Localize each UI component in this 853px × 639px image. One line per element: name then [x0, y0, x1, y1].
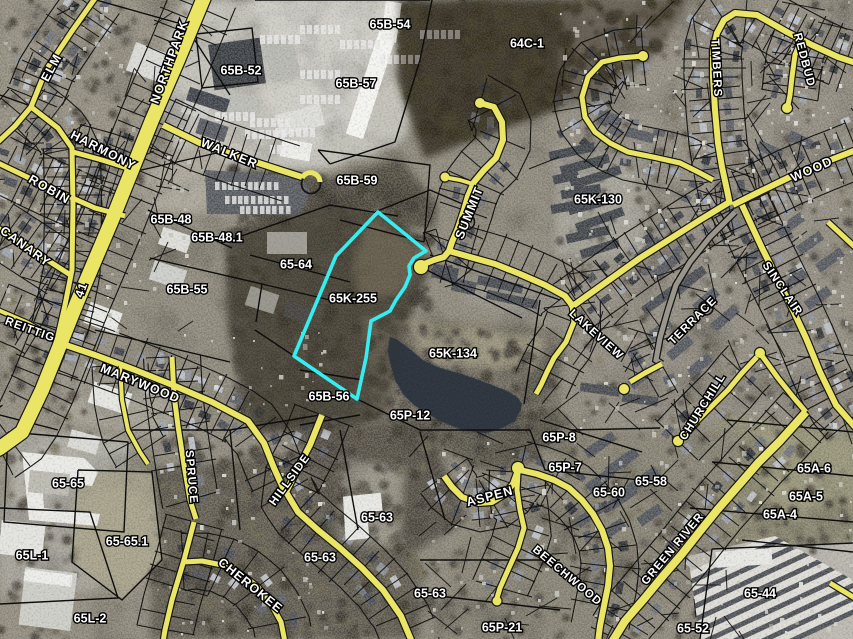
svg-text:65-63: 65-63 [304, 550, 336, 564]
svg-text:65-60: 65-60 [593, 485, 625, 499]
svg-text:65B-48.1: 65B-48.1 [191, 230, 242, 244]
svg-text:65-63: 65-63 [414, 586, 446, 600]
svg-text:65-44: 65-44 [744, 586, 776, 600]
svg-text:65P-21: 65P-21 [482, 620, 522, 634]
svg-text:65A-4: 65A-4 [763, 507, 797, 521]
svg-text:65P-8: 65P-8 [542, 430, 575, 444]
svg-text:65B-52: 65B-52 [221, 63, 262, 77]
svg-text:65B-48: 65B-48 [151, 212, 192, 226]
svg-text:64C-1: 64C-1 [510, 36, 544, 50]
svg-text:65-52: 65-52 [677, 621, 709, 635]
svg-text:65K-130: 65K-130 [574, 192, 622, 206]
svg-text:65B-59: 65B-59 [337, 173, 378, 187]
svg-text:65B-57: 65B-57 [336, 76, 377, 90]
svg-text:65K-134: 65K-134 [429, 346, 477, 360]
svg-text:65-64: 65-64 [280, 257, 312, 271]
svg-text:65A-6: 65A-6 [797, 461, 831, 475]
svg-text:65-65.1: 65-65.1 [106, 534, 148, 548]
svg-text:65P-7: 65P-7 [548, 460, 581, 474]
svg-text:65P-12: 65P-12 [390, 408, 430, 422]
svg-text:65K-255: 65K-255 [329, 291, 377, 305]
svg-text:65-63: 65-63 [361, 510, 393, 524]
svg-text:65L-1: 65L-1 [16, 548, 49, 562]
svg-text:65A-5: 65A-5 [789, 489, 823, 503]
svg-text:65-65: 65-65 [52, 476, 84, 490]
svg-text:65B-55: 65B-55 [167, 282, 208, 296]
svg-text:65-58: 65-58 [635, 474, 667, 488]
svg-text:65B-56: 65B-56 [309, 389, 350, 403]
svg-text:65L-2: 65L-2 [74, 611, 107, 625]
svg-text:65B-54: 65B-54 [370, 17, 411, 31]
